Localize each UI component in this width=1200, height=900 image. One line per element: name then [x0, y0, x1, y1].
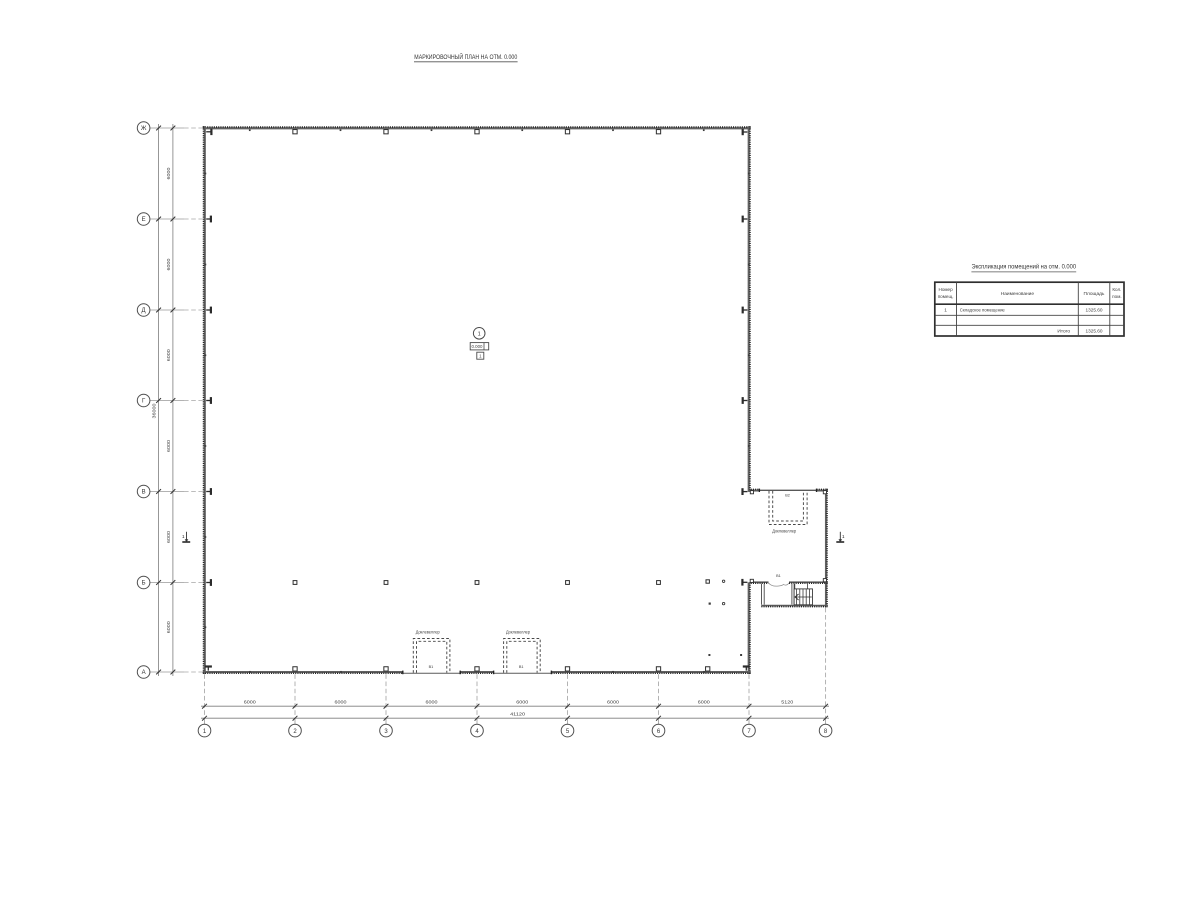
svg-text:Е: Е [142, 217, 146, 223]
svg-text:6000: 6000 [516, 700, 529, 705]
svg-text:Кол.: Кол. [1112, 287, 1121, 292]
svg-text:Складское помещение: Складское помещение [960, 308, 1005, 314]
svg-text:1: 1 [944, 308, 947, 314]
svg-text:6000: 6000 [166, 258, 171, 271]
svg-text:6000: 6000 [335, 700, 348, 705]
svg-text:6000: 6000 [166, 349, 171, 362]
svg-text:Наименование: Наименование [1001, 291, 1035, 297]
svg-text:Доклевеллер: Доклевеллер [506, 629, 530, 634]
svg-text:6000: 6000 [426, 700, 439, 705]
svg-text:1: 1 [478, 331, 481, 337]
svg-text:6000: 6000 [166, 167, 171, 180]
svg-text:В1: В1 [429, 665, 434, 669]
svg-text:6000: 6000 [698, 700, 711, 705]
svg-text:В1: В1 [776, 574, 781, 578]
svg-text:В: В [142, 490, 146, 496]
svg-text:41120: 41120 [510, 712, 526, 717]
svg-text:Номер: Номер [939, 287, 954, 292]
svg-text:Площадь: Площадь [1084, 291, 1105, 297]
svg-text:6000: 6000 [607, 700, 620, 705]
svg-text:Доклевеллер: Доклевеллер [416, 629, 440, 634]
svg-text:В2: В2 [785, 493, 790, 497]
svg-text:Доклевеллер: Доклевеллер [772, 528, 796, 533]
svg-text:1: 1 [182, 534, 185, 539]
svg-text:Итого: Итого [1057, 328, 1070, 334]
svg-text:Б: Б [142, 581, 146, 587]
svg-text:5120: 5120 [781, 700, 794, 705]
svg-text:МАРКИРОВОЧНЫЙ ПЛАН НА ОТМ. 0.0: МАРКИРОВОЧНЫЙ ПЛАН НА ОТМ. 0.000 [414, 52, 517, 61]
svg-text:6000: 6000 [244, 700, 257, 705]
svg-text:Д: Д [142, 308, 146, 314]
svg-text:6000: 6000 [166, 621, 171, 634]
svg-text:Экспликация помещений на отм.: Экспликация помещений на отм. 0.000 [972, 264, 1077, 271]
svg-text:1325.60: 1325.60 [1086, 328, 1103, 334]
svg-text:А: А [142, 670, 146, 676]
svg-text:Ж: Ж [141, 126, 147, 132]
svg-text:0.000: 0.000 [472, 344, 484, 349]
svg-text:36000: 36000 [152, 403, 157, 419]
svg-text:пом.: пом. [1112, 294, 1121, 299]
svg-text:6000: 6000 [166, 530, 171, 543]
svg-text:6000: 6000 [166, 439, 171, 452]
svg-text:В1: В1 [519, 665, 524, 669]
svg-text:1325.60: 1325.60 [1086, 308, 1103, 314]
svg-text:помещ.: помещ. [938, 294, 954, 299]
svg-text:1: 1 [842, 534, 845, 539]
